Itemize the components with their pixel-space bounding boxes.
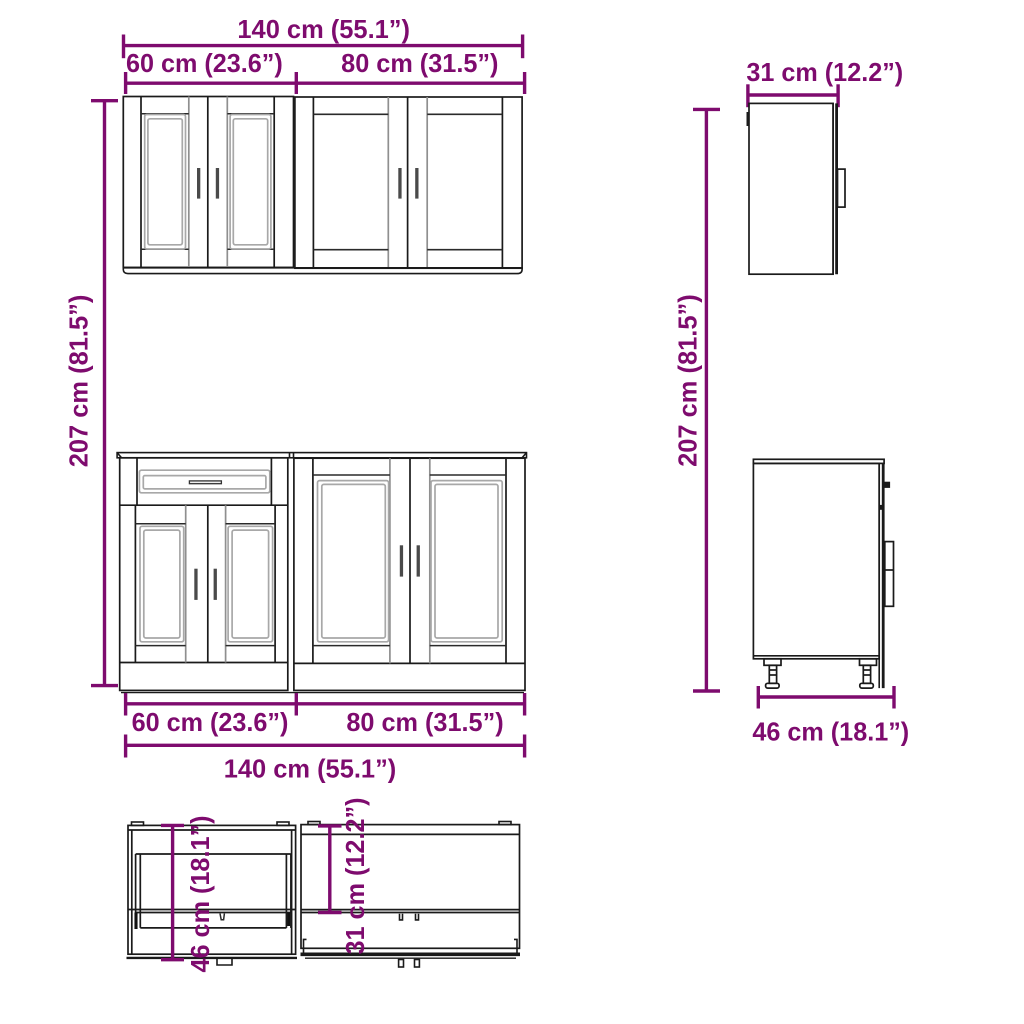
svg-text:46 cm (18.1”): 46 cm (18.1”) — [185, 816, 215, 973]
svg-text:80 cm (31.5”): 80 cm (31.5”) — [346, 707, 503, 737]
svg-text:31 cm (12.2”): 31 cm (12.2”) — [746, 57, 903, 87]
svg-text:207 cm (81.5”): 207 cm (81.5”) — [64, 295, 94, 468]
svg-text:60 cm (23.6”): 60 cm (23.6”) — [132, 707, 289, 737]
svg-text:140 cm (55.1”): 140 cm (55.1”) — [237, 14, 410, 44]
svg-text:140 cm (55.1”): 140 cm (55.1”) — [224, 753, 397, 783]
svg-text:46 cm (18.1”): 46 cm (18.1”) — [752, 717, 909, 747]
svg-text:60 cm (23.6”): 60 cm (23.6”) — [126, 48, 283, 78]
svg-text:80 cm (31.5”): 80 cm (31.5”) — [341, 48, 498, 78]
svg-text:207 cm (81.5”): 207 cm (81.5”) — [673, 294, 703, 467]
svg-text:31 cm (12.2”): 31 cm (12.2”) — [340, 798, 370, 955]
